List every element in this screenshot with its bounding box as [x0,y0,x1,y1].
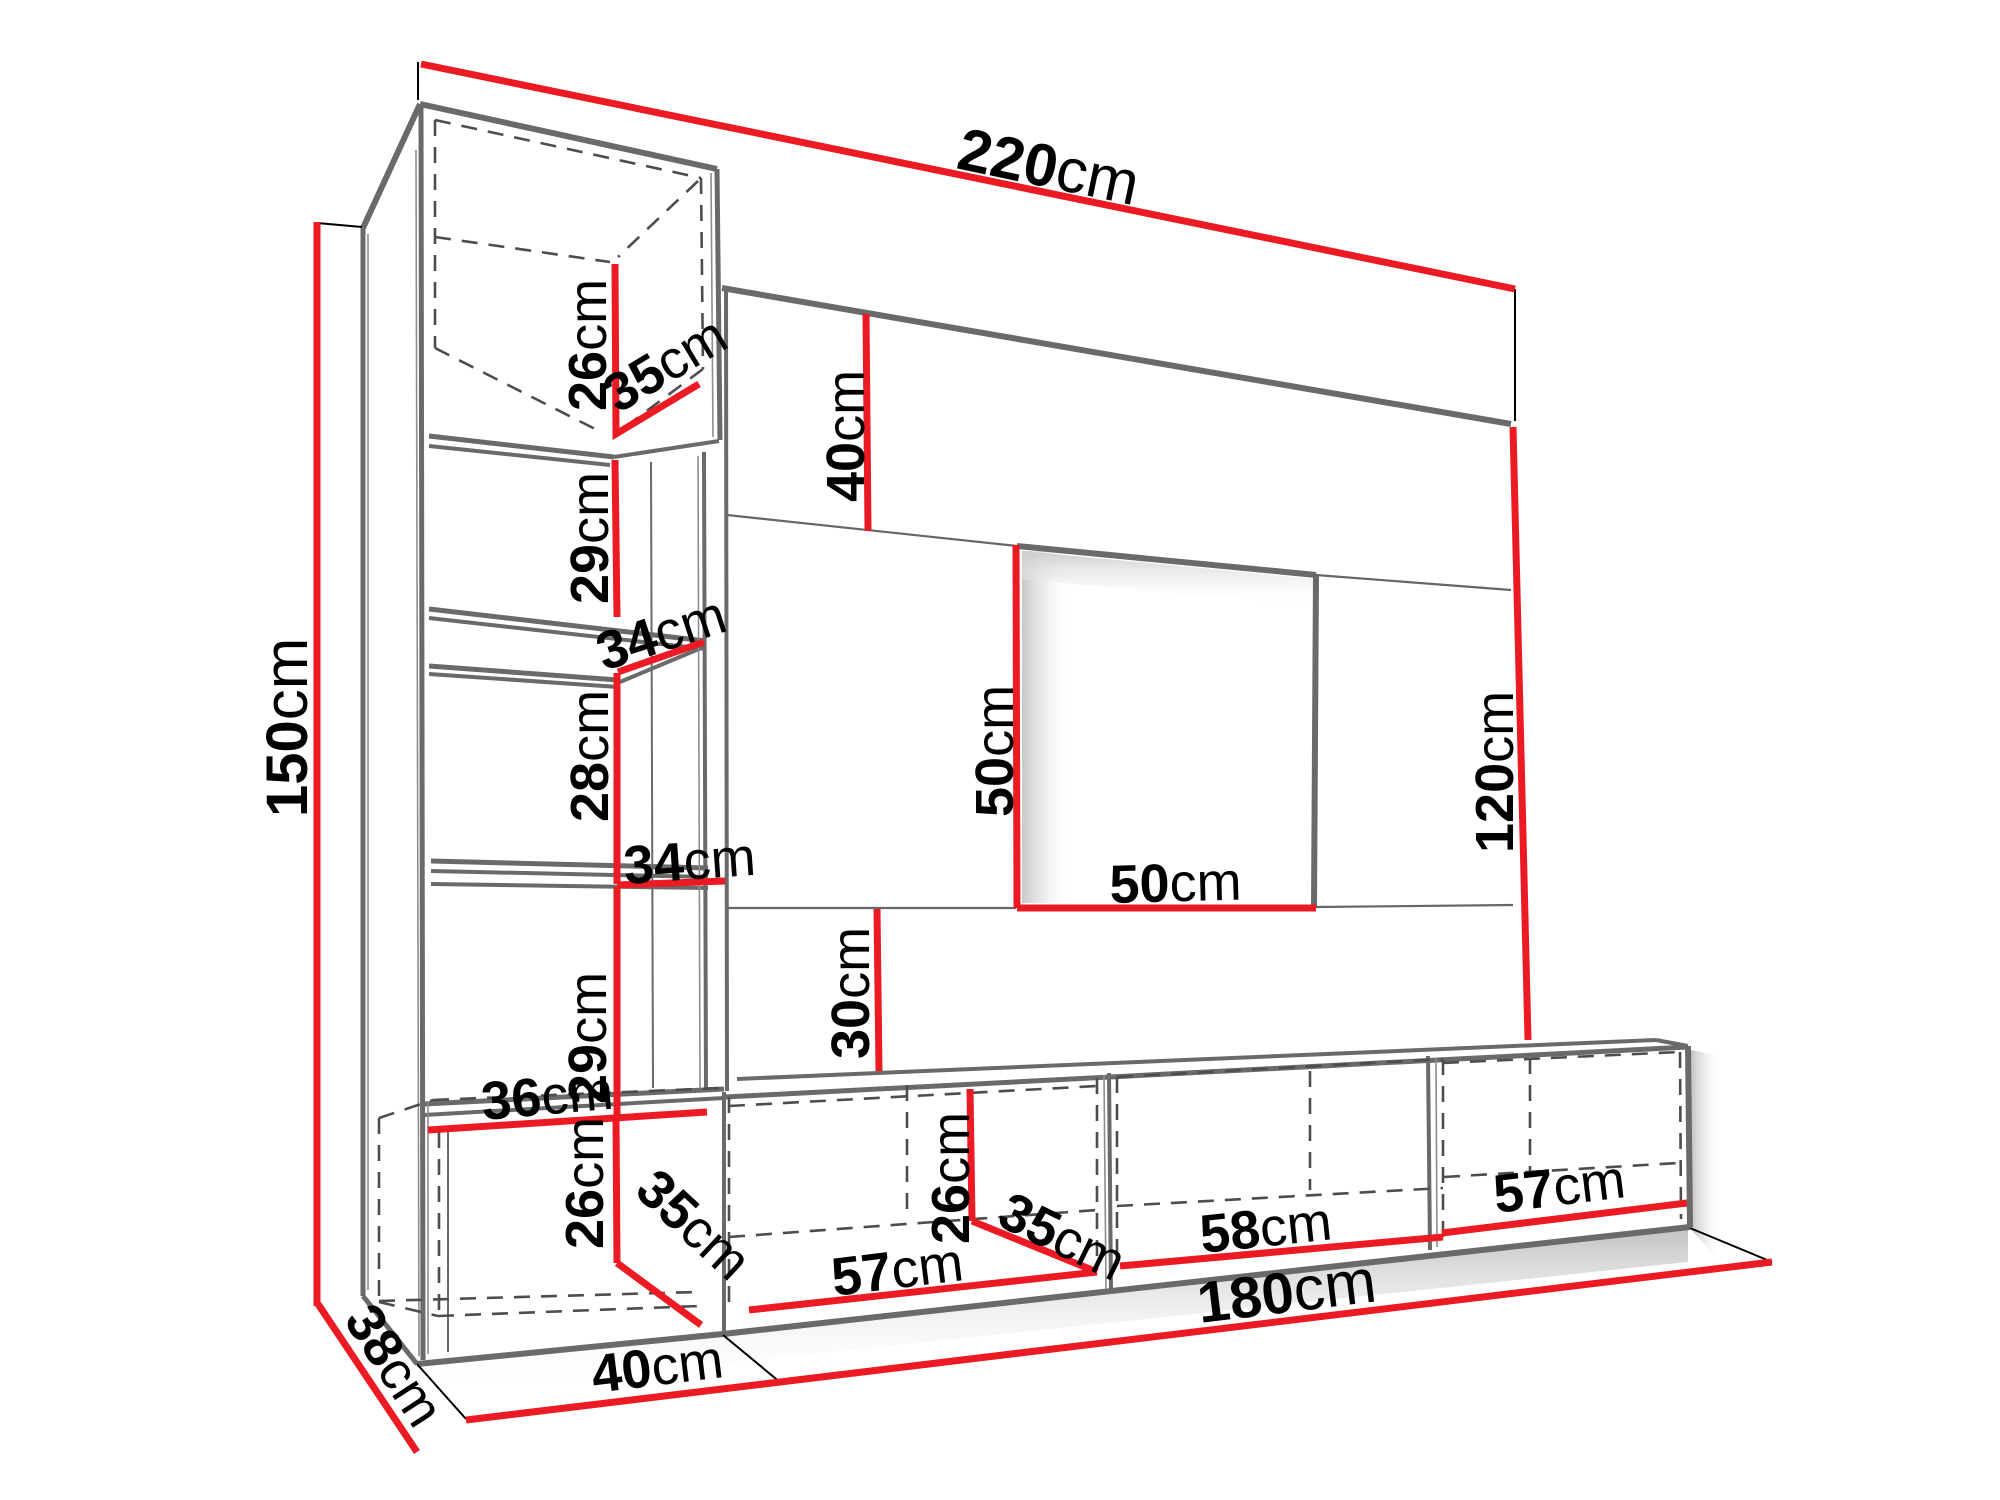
svg-text:40cm: 40cm [816,370,876,502]
svg-text:26cm: 26cm [921,1112,981,1244]
svg-text:50cm: 50cm [1109,852,1243,915]
svg-text:150cm: 150cm [252,638,321,817]
svg-text:120cm: 120cm [1465,691,1525,853]
svg-text:30cm: 30cm [821,927,881,1059]
svg-text:29cm: 29cm [560,472,620,604]
svg-text:28cm: 28cm [560,690,620,822]
svg-text:50cm: 50cm [965,685,1025,817]
svg-text:34cm: 34cm [622,827,758,896]
svg-text:26cm: 26cm [555,1117,615,1249]
